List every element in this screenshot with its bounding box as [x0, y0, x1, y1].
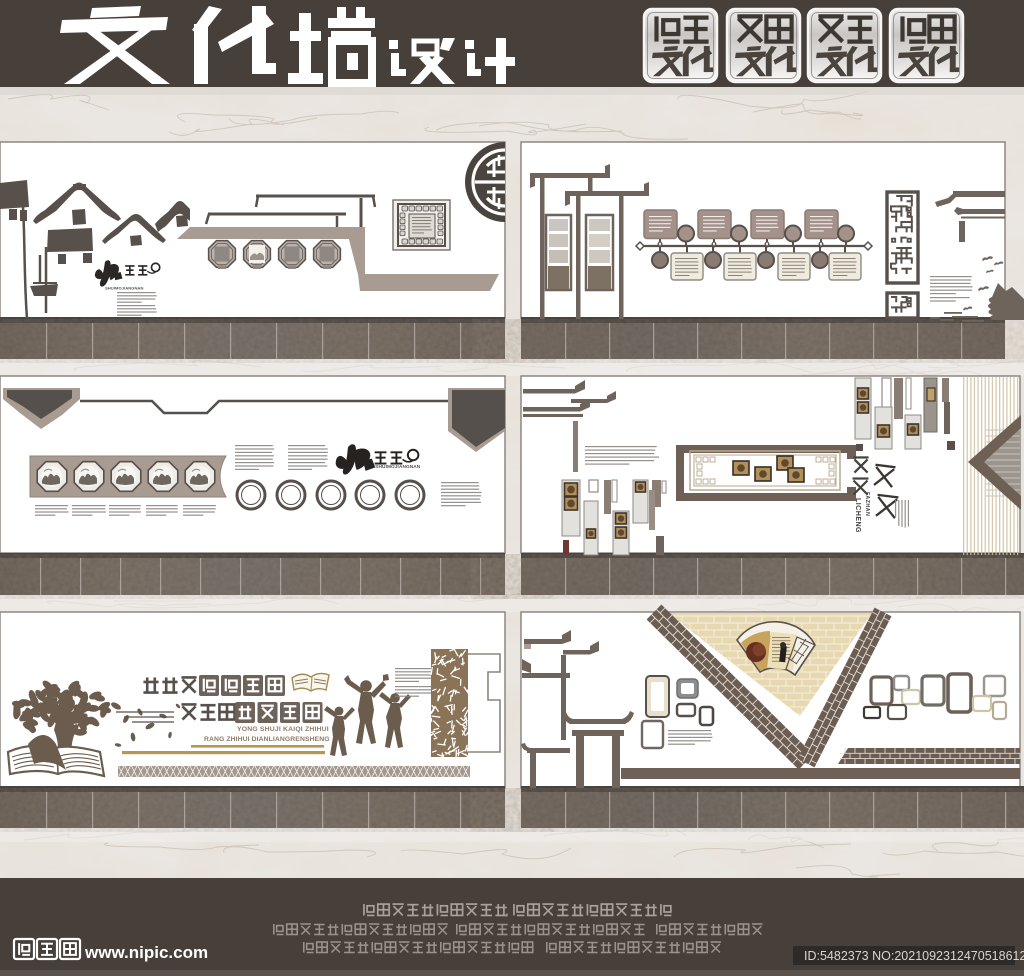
svg-text:SHUIMOJIANGNAN: SHUIMOJIANGNAN [105, 285, 143, 290]
svg-text:FAZHAN: FAZHAN [864, 492, 870, 516]
svg-text:www.nipic.com: www.nipic.com [84, 943, 208, 962]
svg-text:YONG SHUJI KAIQI ZHIHUI: YONG SHUJI KAIQI ZHIHUI [237, 726, 329, 733]
svg-text:ID:5482373 NO:2021092312470518: ID:5482373 NO:20210923124705186124 [804, 949, 1024, 963]
svg-text:SHUIMOJIANGNAN: SHUIMOJIANGNAN [375, 464, 421, 470]
svg-text:,: , [505, 902, 509, 918]
svg-text:RANG ZHIHUI DIANLIANGRENSHENG: RANG ZHIHUI DIANLIANGRENSHENG [204, 736, 330, 743]
svg-text:LICHENG: LICHENG [854, 498, 861, 533]
